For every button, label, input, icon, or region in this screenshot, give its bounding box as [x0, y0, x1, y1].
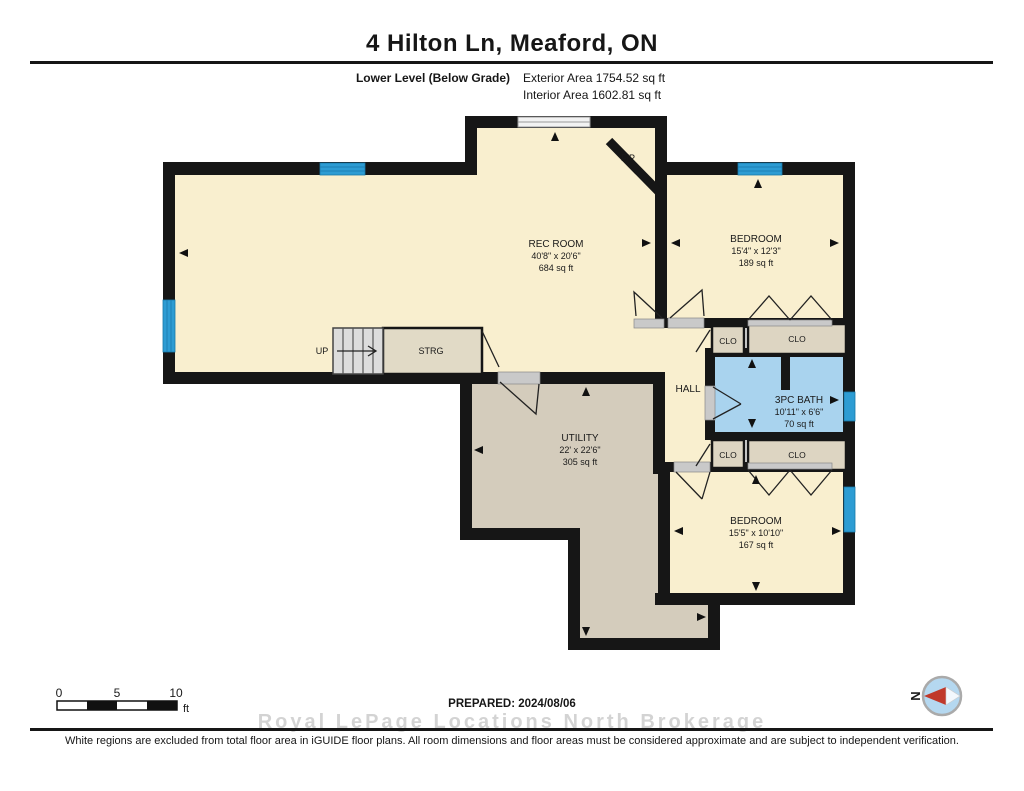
closet-bottom-large-label: CLO	[788, 450, 806, 460]
bedroom-bottom-sqft: 167 sq ft	[739, 540, 774, 550]
page-title: 4 Hilton Ln, Meaford, ON	[0, 30, 1024, 58]
bedroom-top-sqft: 189 sq ft	[739, 258, 774, 268]
footer-divider	[30, 728, 993, 731]
stairs-up-label: UP	[316, 346, 329, 356]
storage-label: STRG	[418, 346, 443, 356]
closet-top-large-label: CLO	[788, 334, 806, 344]
utility-label: UTILITY	[561, 433, 599, 444]
bedroom-top-label: BEDROOM	[730, 234, 782, 245]
utility-sqft: 305 sq ft	[563, 457, 598, 467]
window-rec-top	[320, 163, 365, 175]
bedroom-bottom-dims: 15'5" x 10'10"	[729, 528, 783, 538]
bath-label: 3PC BATH	[775, 395, 823, 406]
staircase	[333, 328, 383, 374]
hall-label: HALL	[675, 384, 700, 395]
bedroom-bottom-label: BEDROOM	[730, 516, 782, 527]
window-gray-top	[518, 117, 590, 127]
rec-room-sqft: 684 sq ft	[539, 263, 574, 273]
disclaimer-text: White regions are excluded from total fl…	[0, 735, 1024, 747]
rec-room-label: REC ROOM	[529, 239, 584, 250]
level-label: Lower Level (Below Grade)	[240, 71, 510, 85]
closet-bottom-small-label: CLO	[719, 450, 737, 460]
bath-dims: 10'11" x 6'6"	[775, 407, 824, 417]
window-rec-left	[163, 300, 175, 352]
fireplace-label: F/P	[621, 153, 635, 163]
floorplan-canvas: REC ROOM 40'8" x 20'6" 684 sq ft BEDROOM…	[0, 0, 1024, 791]
window-bedroom-bottom-right	[844, 487, 855, 532]
window-bedroom-top	[738, 163, 782, 175]
window-bath-right	[844, 392, 855, 421]
bath-sqft: 70 sq ft	[784, 419, 814, 429]
prepared-date: PREPARED: 2024/08/06	[0, 698, 1024, 710]
interior-area-text: Interior Area 1602.81 sq ft	[523, 88, 661, 102]
utility-dims: 22' x 22'6"	[559, 445, 600, 455]
closet-top-small-label: CLO	[719, 336, 737, 346]
header-divider	[30, 61, 993, 64]
bedroom-top-dims: 15'4" x 12'3"	[731, 246, 780, 256]
rec-room-dims: 40'8" x 20'6"	[531, 251, 580, 261]
exterior-area-text: Exterior Area 1754.52 sq ft	[523, 71, 665, 85]
